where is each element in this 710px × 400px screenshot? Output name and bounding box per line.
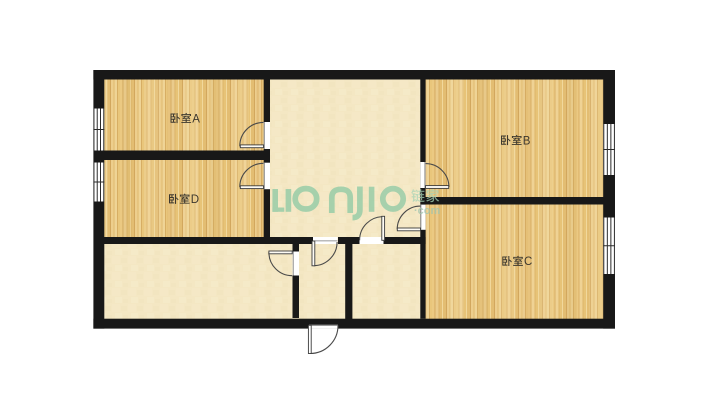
svg-text:B: B (523, 135, 531, 147)
svg-text:C: C (524, 256, 532, 268)
svg-text:·com: ·com (414, 205, 441, 217)
svg-text:D: D (191, 194, 199, 206)
svg-text:A: A (192, 113, 200, 125)
